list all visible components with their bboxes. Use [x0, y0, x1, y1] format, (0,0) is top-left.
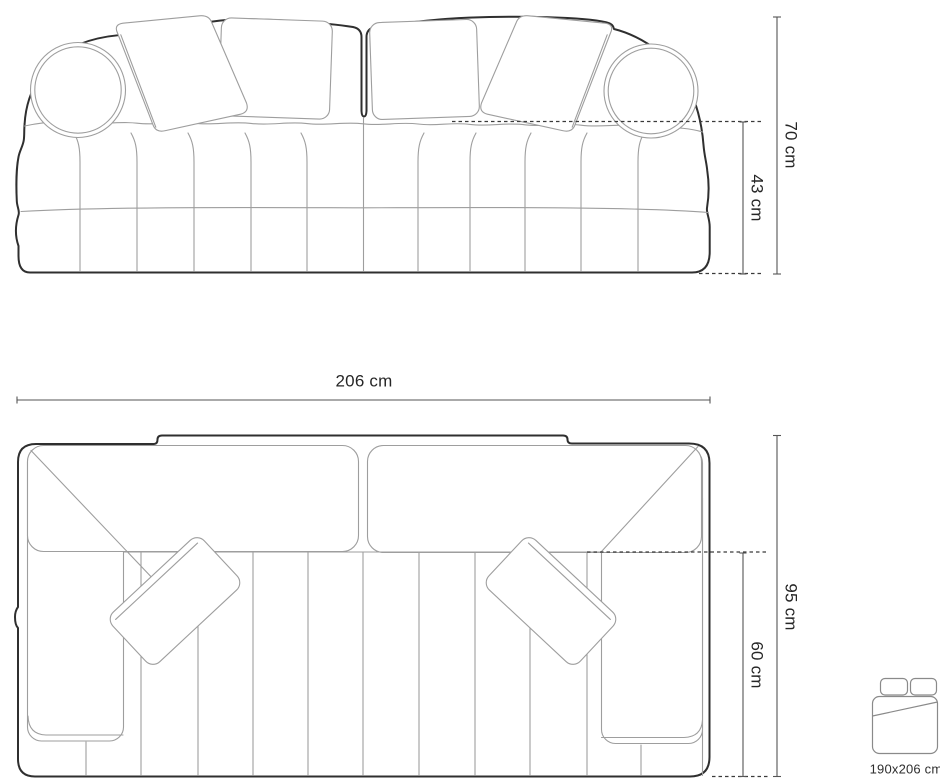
- sofa-top-view-drawing: [15, 436, 710, 777]
- dimension-line-seat-height: [740, 122, 747, 274]
- dimension-line-total-width: [17, 397, 710, 404]
- back-cushion-right: [368, 446, 702, 553]
- dimension-line-seat-depth: [740, 553, 747, 777]
- dimension-label-total-width: 206 cm: [336, 372, 393, 389]
- front-outline: [16, 17, 710, 273]
- sofa-bed-top-view-icon: [873, 679, 938, 754]
- sleeping-area-label: 190x206 cm: [870, 762, 940, 775]
- dimension-label-seat-depth: 60 cm: [749, 641, 766, 688]
- dimension-label-total-height: 70 cm: [782, 121, 799, 168]
- bed-icon-pillow-right: [911, 679, 937, 696]
- sofa-front-view-drawing: [16, 16, 710, 273]
- dimension-label-total-depth: 95 cm: [782, 583, 799, 630]
- sofa-dimension-diagram: 70 cm 43 cm 206 cm 95 cm 60 cm 190x206 c…: [0, 0, 940, 780]
- dimension-line-total-depth: [773, 436, 781, 777]
- bed-icon-pillow-left: [881, 679, 908, 696]
- bolster-cushion-right: [604, 44, 698, 138]
- dimension-label-seat-height: 43 cm: [749, 174, 766, 221]
- diagram-line-art: [0, 0, 940, 780]
- dimension-line-total-height: [773, 17, 781, 274]
- bed-icon-body: [873, 697, 938, 754]
- bolster-cushion-left: [31, 43, 126, 138]
- back-pillow-right-inner: [369, 19, 479, 120]
